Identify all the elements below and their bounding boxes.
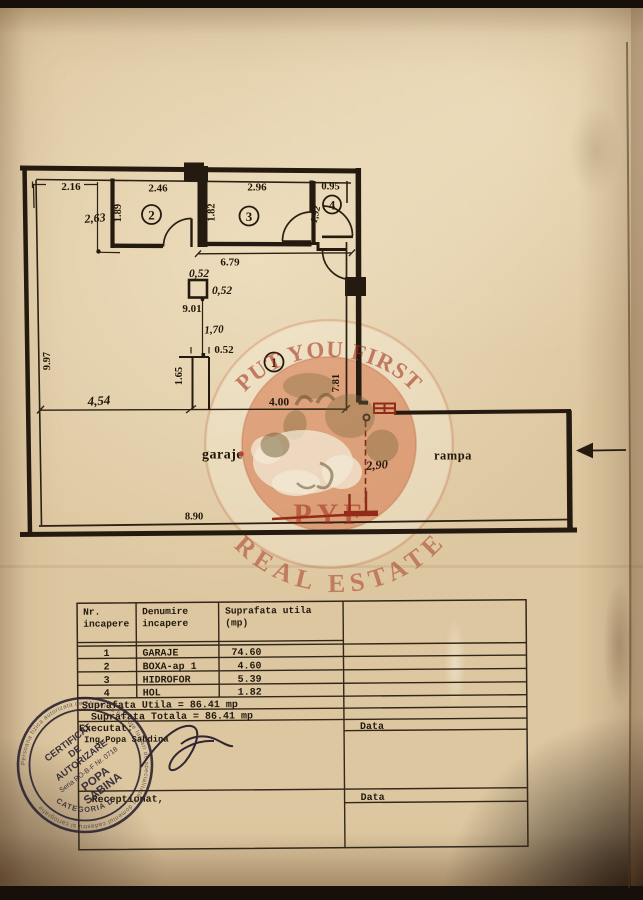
svg-text:BOXA-ap 1: BOXA-ap 1 [143,662,197,673]
svg-text:HOL: HOL [143,688,161,699]
svg-text:9.01: 9.01 [182,303,201,315]
svg-text:4,54: 4,54 [86,392,111,409]
svg-text:1.82: 1.82 [238,688,262,699]
svg-text:74.60: 74.60 [231,648,261,659]
svg-text:8.90: 8.90 [185,512,203,523]
svg-text:2: 2 [148,208,155,223]
svg-text:incapere: incapere [142,618,188,629]
svg-text:1,92: 1,92 [309,205,323,224]
svg-text:4: 4 [329,198,336,213]
svg-text:2,63: 2,63 [83,210,106,226]
svg-text:Denumire: Denumire [142,606,188,617]
svg-text:3: 3 [246,209,253,224]
svg-text:GARAJE: GARAJE [142,648,178,659]
svg-text:Suprafata utila: Suprafata utila [225,605,312,617]
svg-text:2.16: 2.16 [61,181,81,193]
svg-text:PYF: PYF [293,498,366,531]
svg-text:HIDROFOR: HIDROFOR [143,675,191,686]
svg-text:5.39: 5.39 [238,675,262,686]
svg-text:rampa: rampa [434,449,472,463]
svg-text:incapere: incapere [83,618,129,629]
svg-text:garaje: garaje [202,448,243,463]
svg-text:1.82: 1.82 [207,203,218,221]
svg-text:Nr.: Nr. [83,607,100,618]
svg-text:2.96: 2.96 [247,182,267,194]
svg-text:Data: Data [361,793,385,804]
svg-text:1.65: 1.65 [174,367,185,385]
svg-text:4.00: 4.00 [269,397,289,409]
svg-text:0.95: 0.95 [321,182,339,193]
svg-text:2.46: 2.46 [148,183,168,195]
svg-text:3: 3 [104,676,110,687]
svg-text:0,52: 0,52 [212,285,232,297]
svg-text:0.52: 0.52 [214,344,234,356]
svg-text:9.97: 9.97 [42,352,53,371]
svg-text:Data: Data [360,722,384,733]
svg-text:1: 1 [103,649,109,660]
svg-text:6.79: 6.79 [220,257,240,269]
svg-text:0,52: 0,52 [189,268,209,280]
svg-text:4.60: 4.60 [237,661,261,672]
svg-text:(mp): (mp) [225,617,248,628]
svg-text:1.89: 1.89 [113,204,124,222]
svg-text:4: 4 [104,689,110,700]
svg-text:1,70: 1,70 [204,323,225,336]
svg-text:2: 2 [104,662,110,673]
